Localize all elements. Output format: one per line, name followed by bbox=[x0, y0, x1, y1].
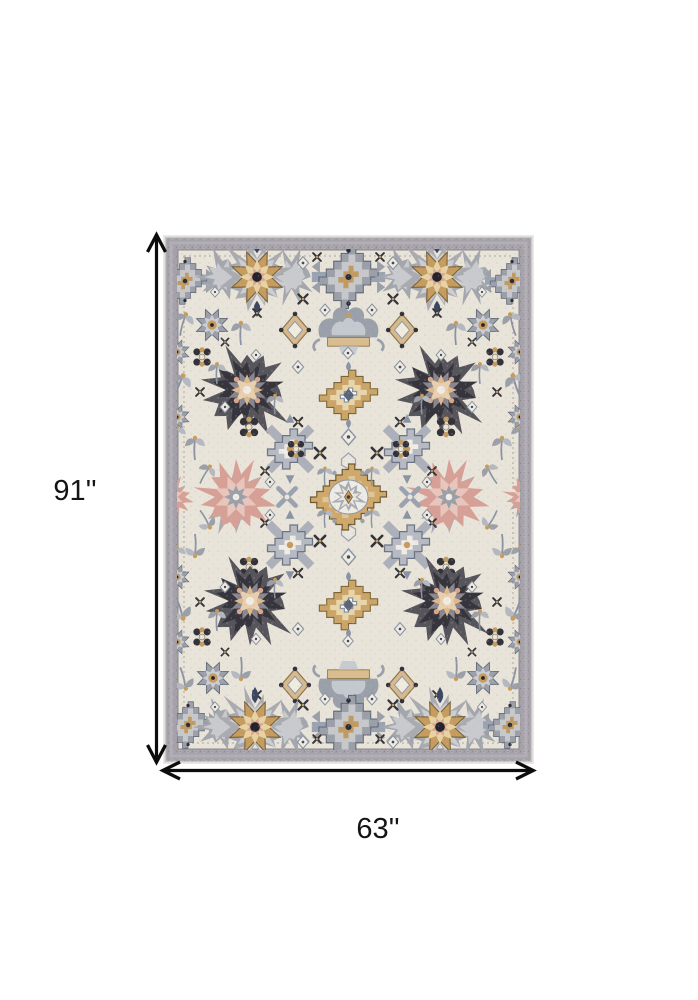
svg-text:63'': 63'' bbox=[356, 813, 399, 845]
svg-text:91'': 91'' bbox=[53, 475, 96, 507]
